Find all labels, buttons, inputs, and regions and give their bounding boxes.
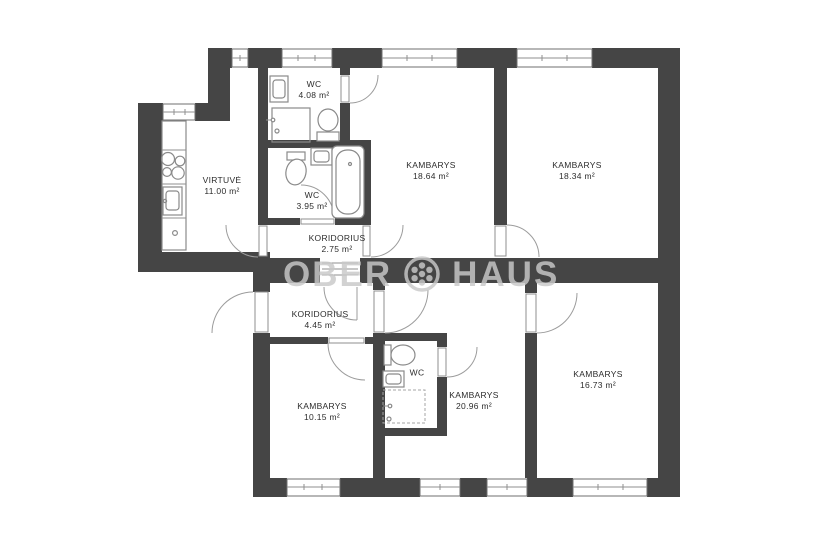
room-area: 11.00 m² — [203, 186, 242, 197]
toilet-icon — [384, 345, 415, 365]
toilet-icon — [317, 109, 339, 141]
room-area: 2.75 m² — [309, 244, 366, 255]
window-icon — [163, 104, 195, 120]
walls — [138, 48, 680, 497]
room-area: 16.73 m² — [573, 380, 622, 391]
room-name: VIRTUVĖ — [203, 175, 242, 186]
door — [526, 293, 577, 333]
bathroom-sink-icon — [270, 76, 288, 102]
room-area: 18.34 m² — [552, 171, 601, 182]
window-icon — [282, 49, 332, 67]
kitchen-counter-icon — [162, 121, 186, 250]
window-icon — [573, 479, 647, 496]
window-icon — [287, 479, 340, 496]
door — [438, 347, 477, 377]
room-label-kambarys-5: KAMBARYS 16.73 m² — [573, 369, 622, 391]
bathtub-icon — [332, 146, 364, 218]
room-area: 4.08 m² — [299, 90, 330, 101]
kitchen-sink-icon — [163, 187, 182, 215]
floorplan-canvas: VIRTUVĖ 11.00 m² WC 4.08 m² WC 3.95 m² K… — [0, 0, 820, 547]
room-area: 10.15 m² — [297, 412, 346, 423]
room-name: KAMBARYS — [552, 160, 601, 171]
room-name: KAMBARYS — [449, 390, 498, 401]
room-area: 20.96 m² — [449, 401, 498, 412]
window-icon — [517, 49, 592, 67]
room-name: KORIDORIUS — [292, 309, 349, 320]
door — [495, 225, 539, 257]
room-label-wc-bottom: WC — [410, 367, 425, 378]
stove-icon — [162, 153, 185, 180]
room-label-virtuve: VIRTUVĖ 11.00 m² — [203, 175, 242, 197]
entrance-door — [212, 292, 268, 333]
room-label-kambarys-2: KAMBARYS 18.34 m² — [552, 160, 601, 182]
shower-icon — [266, 108, 310, 142]
room-name: KAMBARYS — [573, 369, 622, 380]
window-icon — [420, 479, 460, 496]
room-name: KORIDORIUS — [309, 233, 366, 244]
room-name: WC — [297, 190, 328, 201]
room-label-kambarys-1: KAMBARYS 18.64 m² — [406, 160, 455, 182]
room-area: 4.45 m² — [292, 320, 349, 331]
room-label-wc-middle: WC 3.95 m² — [297, 190, 328, 212]
room-label-kambarys-3: KAMBARYS 10.15 m² — [297, 401, 346, 423]
room-name: WC — [299, 79, 330, 90]
fixtures — [162, 76, 426, 423]
room-area: 3.95 m² — [297, 201, 328, 212]
door — [363, 225, 403, 257]
room-label-koridorius-2: KORIDORIUS 4.45 m² — [292, 309, 349, 331]
door — [341, 75, 378, 103]
room-name: KAMBARYS — [297, 401, 346, 412]
room-name: KAMBARYS — [406, 160, 455, 171]
room-label-koridorius-1: KORIDORIUS 2.75 m² — [309, 233, 366, 255]
bathroom-sink-icon — [383, 371, 404, 387]
window-icon — [382, 49, 457, 67]
toilet-icon — [284, 152, 309, 187]
room-label-kambarys-4: KAMBARYS 20.96 m² — [449, 390, 498, 412]
window-icon — [232, 49, 248, 67]
floorplan-graphics — [0, 0, 820, 547]
door — [328, 338, 365, 380]
bathroom-sink-icon — [311, 148, 332, 165]
room-name: WC — [410, 367, 425, 378]
room-area: 18.64 m² — [406, 171, 455, 182]
door — [374, 290, 428, 333]
room-label-wc-top: WC 4.08 m² — [299, 79, 330, 101]
shower-icon — [383, 390, 425, 423]
window-icon — [487, 479, 527, 496]
